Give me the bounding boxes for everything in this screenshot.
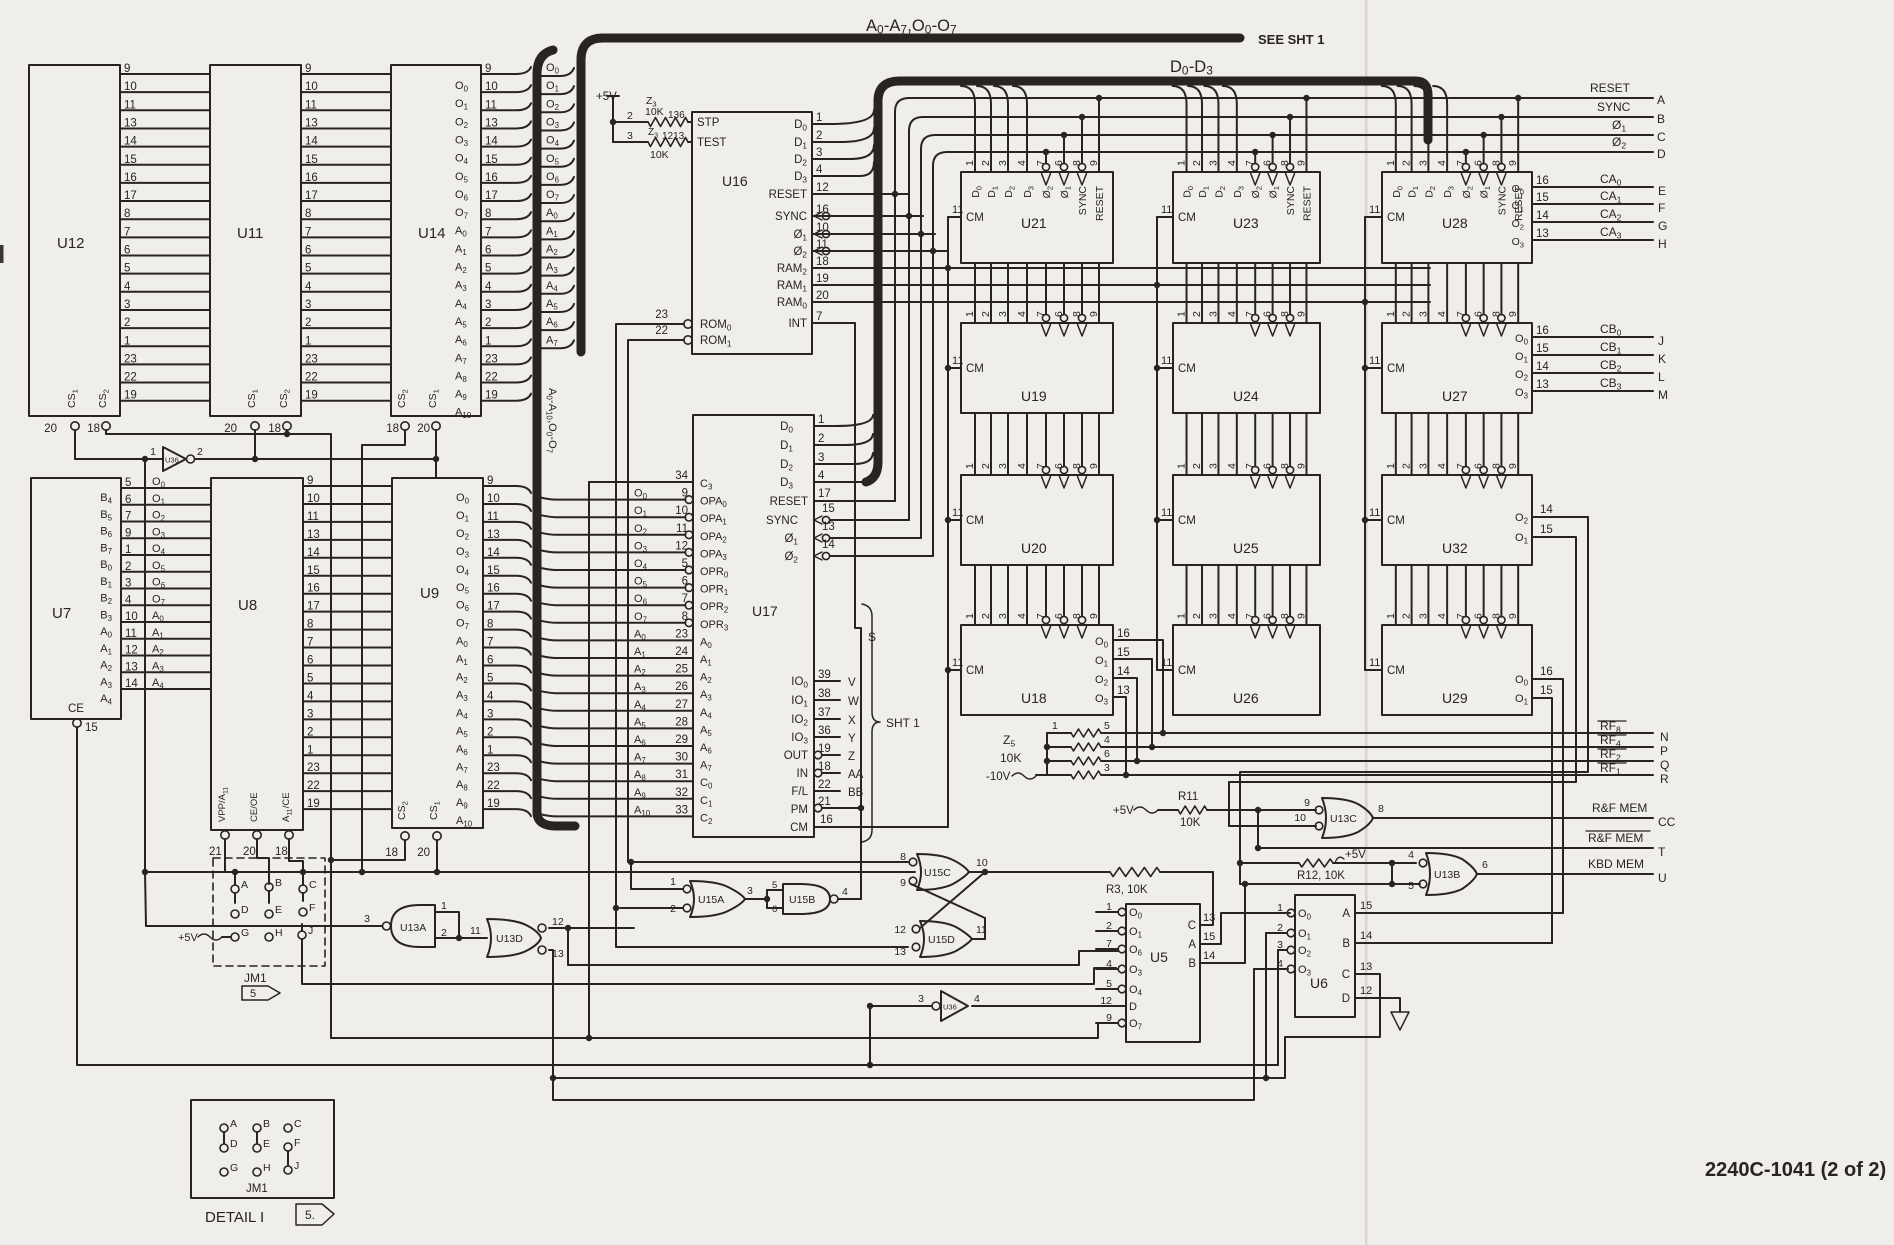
svg-text:T: T bbox=[1658, 845, 1666, 859]
svg-text:3: 3 bbox=[307, 708, 313, 720]
svg-text:5: 5 bbox=[307, 672, 313, 684]
svg-text:11: 11 bbox=[1161, 355, 1172, 367]
svg-text:2: 2 bbox=[818, 433, 824, 445]
svg-text:4: 4 bbox=[124, 281, 131, 293]
svg-text:C: C bbox=[1342, 969, 1350, 981]
svg-text:X: X bbox=[848, 715, 856, 727]
svg-text:33: 33 bbox=[675, 804, 688, 816]
svg-text:U13D: U13D bbox=[496, 933, 523, 945]
svg-text:B: B bbox=[1188, 958, 1196, 970]
svg-text:R&F MEM: R&F MEM bbox=[1588, 831, 1643, 845]
svg-text:U7: U7 bbox=[52, 605, 71, 622]
svg-text:1: 1 bbox=[818, 414, 824, 426]
svg-text:5: 5 bbox=[124, 263, 130, 275]
svg-text:15: 15 bbox=[822, 503, 835, 515]
svg-text:U12: U12 bbox=[57, 235, 85, 252]
svg-text:3: 3 bbox=[1104, 762, 1110, 774]
svg-text:U13B: U13B bbox=[1434, 869, 1460, 881]
svg-text:20: 20 bbox=[44, 423, 57, 435]
svg-text:20: 20 bbox=[243, 846, 256, 858]
svg-text:6: 6 bbox=[772, 904, 777, 915]
svg-text:OUT: OUT bbox=[784, 750, 808, 762]
svg-text:B: B bbox=[1657, 112, 1665, 126]
svg-text:5.: 5. bbox=[305, 1208, 315, 1222]
svg-text:RESET: RESET bbox=[769, 189, 807, 201]
svg-text:15: 15 bbox=[307, 565, 320, 577]
svg-text:4: 4 bbox=[842, 886, 848, 898]
svg-text:8: 8 bbox=[305, 208, 311, 220]
svg-text:U14: U14 bbox=[418, 225, 446, 242]
svg-text:CM: CM bbox=[966, 515, 984, 527]
svg-text:11: 11 bbox=[1369, 657, 1380, 669]
svg-text:15: 15 bbox=[1540, 685, 1553, 697]
svg-text:F: F bbox=[294, 1137, 300, 1149]
svg-text:11: 11 bbox=[952, 507, 963, 519]
svg-text:3: 3 bbox=[816, 147, 822, 159]
svg-text:E: E bbox=[263, 1138, 270, 1150]
svg-text:14: 14 bbox=[124, 136, 137, 148]
svg-text:B: B bbox=[275, 877, 282, 889]
svg-text:CM: CM bbox=[1178, 515, 1196, 527]
svg-text:15: 15 bbox=[305, 154, 318, 166]
svg-text:U27: U27 bbox=[1442, 388, 1468, 404]
svg-text:JM1: JM1 bbox=[246, 1183, 268, 1195]
svg-text:SYNC: SYNC bbox=[1285, 186, 1297, 216]
svg-text:K: K bbox=[1658, 352, 1666, 366]
svg-text:2: 2 bbox=[816, 130, 822, 142]
svg-text:PM: PM bbox=[791, 804, 808, 816]
svg-text:20: 20 bbox=[816, 290, 829, 302]
svg-text:29: 29 bbox=[675, 734, 688, 746]
svg-text:21: 21 bbox=[209, 846, 222, 858]
svg-text:U29: U29 bbox=[1442, 690, 1468, 706]
svg-text:1: 1 bbox=[1277, 902, 1283, 914]
svg-text:D: D bbox=[1129, 1001, 1137, 1013]
svg-text:23: 23 bbox=[655, 309, 668, 321]
svg-text:11: 11 bbox=[1161, 204, 1172, 216]
svg-text:7: 7 bbox=[816, 311, 822, 323]
svg-text:2: 2 bbox=[307, 726, 313, 738]
svg-text:CM: CM bbox=[1178, 665, 1196, 677]
svg-text:D: D bbox=[1342, 993, 1350, 1005]
svg-text:12: 12 bbox=[1360, 985, 1372, 997]
svg-text:19: 19 bbox=[818, 743, 831, 755]
svg-text:7: 7 bbox=[124, 226, 130, 238]
svg-text:3: 3 bbox=[747, 885, 753, 897]
svg-text:10K: 10K bbox=[1180, 817, 1201, 829]
svg-text:AA: AA bbox=[848, 769, 864, 781]
svg-text:-10V: -10V bbox=[986, 771, 1011, 783]
svg-text:11: 11 bbox=[952, 204, 963, 216]
svg-text:Z: Z bbox=[848, 751, 855, 763]
svg-text:1: 1 bbox=[1052, 720, 1058, 732]
svg-text:W: W bbox=[848, 696, 859, 708]
svg-text:RESET: RESET bbox=[1094, 185, 1106, 221]
svg-text:CM: CM bbox=[1387, 212, 1405, 224]
svg-text:15: 15 bbox=[85, 722, 98, 734]
svg-text:B: B bbox=[1342, 938, 1350, 950]
svg-text:5: 5 bbox=[1104, 720, 1110, 732]
svg-text:16: 16 bbox=[307, 583, 320, 595]
svg-text:DETAIL I: DETAIL I bbox=[205, 1209, 264, 1226]
svg-text:14: 14 bbox=[1360, 930, 1372, 942]
svg-text:L: L bbox=[1658, 370, 1665, 384]
svg-text:19: 19 bbox=[816, 273, 829, 285]
svg-text:3: 3 bbox=[918, 993, 924, 1005]
svg-text:3: 3 bbox=[364, 913, 370, 925]
svg-text:6: 6 bbox=[307, 655, 313, 667]
svg-text:RESET: RESET bbox=[770, 496, 808, 508]
svg-text:16: 16 bbox=[305, 172, 318, 184]
svg-text:37: 37 bbox=[818, 707, 831, 719]
svg-text:7: 7 bbox=[307, 637, 313, 649]
svg-text:6: 6 bbox=[1482, 859, 1488, 871]
svg-text:11: 11 bbox=[470, 925, 481, 937]
svg-text:R: R bbox=[1660, 772, 1669, 786]
svg-text:C: C bbox=[309, 879, 317, 891]
svg-text:13: 13 bbox=[307, 529, 320, 541]
svg-text:SYNC: SYNC bbox=[1597, 100, 1631, 114]
svg-text:10K: 10K bbox=[1000, 751, 1021, 765]
svg-text:4: 4 bbox=[1104, 734, 1110, 746]
svg-text:11: 11 bbox=[952, 355, 963, 367]
svg-text:13: 13 bbox=[894, 946, 906, 958]
svg-text:U13C: U13C bbox=[1330, 813, 1357, 825]
svg-text:U13A: U13A bbox=[400, 922, 426, 934]
svg-text:TEST: TEST bbox=[697, 137, 726, 149]
svg-text:5: 5 bbox=[305, 263, 311, 275]
svg-text:SYNC: SYNC bbox=[1077, 186, 1089, 216]
svg-text:Y: Y bbox=[848, 733, 856, 745]
svg-text:13: 13 bbox=[1117, 685, 1130, 697]
svg-text:11: 11 bbox=[124, 99, 136, 111]
svg-text:13: 13 bbox=[822, 521, 835, 533]
svg-text:11: 11 bbox=[1161, 507, 1172, 519]
svg-text:15: 15 bbox=[1360, 900, 1372, 912]
svg-text:6: 6 bbox=[305, 245, 311, 257]
svg-text:RESET: RESET bbox=[1590, 81, 1631, 95]
svg-text:RESET: RESET bbox=[1301, 185, 1313, 221]
svg-text:KBD MEM: KBD MEM bbox=[1588, 857, 1644, 871]
svg-text:U36: U36 bbox=[943, 1003, 957, 1012]
svg-text:23: 23 bbox=[305, 353, 318, 365]
svg-text:R3, 10K: R3, 10K bbox=[1106, 884, 1148, 896]
svg-text:B: B bbox=[263, 1118, 270, 1130]
svg-text:10: 10 bbox=[976, 857, 988, 869]
svg-text:14: 14 bbox=[822, 539, 835, 551]
svg-text:14: 14 bbox=[1117, 666, 1130, 678]
svg-text:3: 3 bbox=[818, 452, 824, 464]
svg-text:R&F MEM: R&F MEM bbox=[1592, 801, 1647, 815]
svg-text:CM: CM bbox=[1387, 515, 1405, 527]
svg-text:16: 16 bbox=[1536, 325, 1549, 337]
svg-text:4: 4 bbox=[1408, 849, 1414, 861]
svg-text:6: 6 bbox=[124, 245, 130, 257]
svg-text:22: 22 bbox=[307, 780, 320, 792]
svg-text:30: 30 bbox=[675, 752, 688, 764]
svg-text:16: 16 bbox=[820, 814, 833, 826]
svg-text:32: 32 bbox=[675, 787, 688, 799]
svg-text:13: 13 bbox=[1536, 379, 1549, 391]
svg-text:14: 14 bbox=[305, 136, 318, 148]
svg-text:A: A bbox=[230, 1118, 237, 1130]
svg-text:22: 22 bbox=[305, 372, 318, 384]
svg-text:G: G bbox=[1658, 219, 1667, 233]
svg-text:38: 38 bbox=[818, 688, 831, 700]
svg-text:CM: CM bbox=[1178, 212, 1196, 224]
svg-text:CE: CE bbox=[68, 703, 84, 715]
svg-text:U17: U17 bbox=[752, 603, 778, 619]
svg-text:1: 1 bbox=[150, 446, 156, 458]
svg-text:5: 5 bbox=[1408, 880, 1414, 892]
svg-text:10: 10 bbox=[305, 81, 318, 93]
svg-text:2: 2 bbox=[305, 317, 311, 329]
svg-text:1: 1 bbox=[670, 876, 676, 888]
svg-text:17: 17 bbox=[124, 190, 137, 202]
svg-text:9: 9 bbox=[307, 475, 313, 487]
svg-text:16: 16 bbox=[1117, 628, 1130, 640]
svg-text:11: 11 bbox=[305, 99, 317, 111]
svg-text:17: 17 bbox=[305, 190, 318, 202]
svg-text:A: A bbox=[1188, 939, 1196, 951]
svg-text:F: F bbox=[1658, 201, 1665, 215]
svg-text:14: 14 bbox=[307, 547, 320, 559]
svg-text:10: 10 bbox=[1294, 812, 1306, 824]
svg-text:19: 19 bbox=[307, 798, 320, 810]
svg-text:A: A bbox=[1342, 908, 1350, 920]
svg-text:U21: U21 bbox=[1021, 215, 1047, 231]
svg-text:11: 11 bbox=[1369, 355, 1380, 367]
svg-text:U: U bbox=[1658, 871, 1667, 885]
svg-text:15: 15 bbox=[1536, 192, 1549, 204]
svg-text:SYNC: SYNC bbox=[766, 515, 798, 527]
svg-text:D: D bbox=[230, 1138, 238, 1150]
svg-text:INT: INT bbox=[788, 318, 807, 330]
svg-text:23: 23 bbox=[307, 762, 320, 774]
svg-text:8: 8 bbox=[307, 619, 313, 631]
svg-text:U15A: U15A bbox=[698, 894, 724, 906]
svg-text:15: 15 bbox=[1540, 524, 1553, 536]
svg-text:SHT 1: SHT 1 bbox=[886, 716, 920, 730]
svg-text:26: 26 bbox=[675, 681, 688, 693]
svg-text:R12, 10K: R12, 10K bbox=[1297, 870, 1345, 882]
svg-text:U15B: U15B bbox=[789, 894, 815, 906]
svg-text:CC: CC bbox=[1658, 815, 1676, 829]
svg-text:CM: CM bbox=[1387, 363, 1405, 375]
svg-text:M: M bbox=[1658, 388, 1668, 402]
svg-text:27: 27 bbox=[675, 699, 688, 711]
svg-text:13: 13 bbox=[305, 117, 318, 129]
svg-text:8: 8 bbox=[1378, 803, 1384, 815]
svg-text:17: 17 bbox=[818, 488, 831, 500]
svg-text:1: 1 bbox=[124, 335, 130, 347]
svg-text:Q: Q bbox=[1660, 758, 1669, 772]
svg-text:U24: U24 bbox=[1233, 388, 1259, 404]
svg-text:10: 10 bbox=[307, 493, 320, 505]
svg-text:11: 11 bbox=[307, 511, 319, 523]
svg-text:H: H bbox=[275, 927, 283, 939]
svg-text:CM: CM bbox=[1178, 363, 1196, 375]
svg-text:+5V: +5V bbox=[1345, 849, 1366, 861]
svg-text:1: 1 bbox=[305, 335, 311, 347]
svg-text:22: 22 bbox=[124, 372, 137, 384]
svg-text:136: 136 bbox=[668, 110, 685, 121]
svg-text:CM: CM bbox=[966, 212, 984, 224]
svg-text:2: 2 bbox=[197, 446, 203, 458]
svg-text:8: 8 bbox=[124, 208, 130, 220]
svg-text:18: 18 bbox=[386, 423, 399, 435]
svg-text:U8: U8 bbox=[238, 597, 257, 614]
svg-text:U18: U18 bbox=[1021, 690, 1047, 706]
svg-text:R11: R11 bbox=[1178, 791, 1198, 803]
svg-text:23: 23 bbox=[124, 353, 137, 365]
svg-text:8: 8 bbox=[900, 851, 906, 863]
svg-text:15: 15 bbox=[1203, 931, 1215, 943]
svg-text:2: 2 bbox=[627, 110, 633, 122]
svg-text:U28: U28 bbox=[1442, 215, 1468, 231]
svg-text:F/L: F/L bbox=[791, 786, 808, 798]
svg-text:U26: U26 bbox=[1233, 690, 1259, 706]
svg-text:U11: U11 bbox=[237, 225, 263, 242]
svg-text:G: G bbox=[241, 927, 249, 939]
svg-text:23: 23 bbox=[675, 628, 688, 640]
svg-text:3: 3 bbox=[627, 130, 633, 142]
svg-text:1: 1 bbox=[816, 112, 822, 124]
svg-text:14: 14 bbox=[1203, 950, 1215, 962]
svg-text:16: 16 bbox=[124, 172, 137, 184]
svg-text:J: J bbox=[1658, 334, 1664, 348]
svg-text:U23: U23 bbox=[1233, 215, 1259, 231]
svg-text:28: 28 bbox=[675, 716, 688, 728]
svg-text:E: E bbox=[1658, 184, 1666, 198]
svg-text:U19: U19 bbox=[1021, 388, 1047, 404]
svg-text:SYNC: SYNC bbox=[775, 211, 807, 223]
svg-text:2240C-1041 (2 of 2): 2240C-1041 (2 of 2) bbox=[1705, 1159, 1886, 1181]
svg-text:C: C bbox=[1657, 130, 1666, 144]
svg-text:11: 11 bbox=[1369, 507, 1380, 519]
svg-text:24: 24 bbox=[675, 646, 688, 658]
svg-text:D: D bbox=[1657, 147, 1666, 161]
svg-text:U25: U25 bbox=[1233, 540, 1259, 556]
svg-text:CE/OE: CE/OE bbox=[249, 792, 260, 822]
svg-text:31: 31 bbox=[675, 769, 688, 781]
svg-text:14: 14 bbox=[1540, 504, 1553, 516]
svg-text:12: 12 bbox=[552, 916, 564, 928]
svg-text:20: 20 bbox=[417, 423, 430, 435]
svg-text:5: 5 bbox=[250, 988, 256, 1000]
svg-text:13: 13 bbox=[124, 117, 137, 129]
svg-text:3: 3 bbox=[124, 299, 130, 311]
svg-text:J: J bbox=[308, 925, 313, 937]
svg-text:19: 19 bbox=[305, 390, 318, 402]
svg-text:4: 4 bbox=[974, 993, 980, 1005]
svg-text:18: 18 bbox=[87, 423, 100, 435]
svg-text:12: 12 bbox=[816, 182, 829, 194]
svg-text:16: 16 bbox=[1540, 666, 1553, 678]
svg-text:13: 13 bbox=[1536, 228, 1549, 240]
svg-text:U15D: U15D bbox=[928, 934, 955, 946]
svg-text:G: G bbox=[230, 1162, 238, 1174]
svg-text:20: 20 bbox=[417, 847, 430, 859]
svg-text:7: 7 bbox=[305, 226, 311, 238]
svg-text:U5: U5 bbox=[1150, 949, 1168, 965]
svg-text:A: A bbox=[241, 879, 248, 891]
svg-text:+5V: +5V bbox=[178, 932, 199, 944]
svg-text:4: 4 bbox=[816, 164, 823, 176]
svg-text:3: 3 bbox=[305, 299, 311, 311]
svg-text:A: A bbox=[1657, 93, 1665, 107]
svg-text:14: 14 bbox=[1536, 210, 1549, 222]
svg-text:9: 9 bbox=[124, 63, 130, 75]
svg-text:18: 18 bbox=[816, 256, 829, 268]
svg-text:J: J bbox=[294, 1160, 299, 1172]
svg-text:U6: U6 bbox=[1310, 975, 1328, 991]
svg-text:4: 4 bbox=[818, 470, 825, 482]
svg-text:SYNC: SYNC bbox=[1496, 186, 1508, 216]
svg-text:15: 15 bbox=[124, 154, 137, 166]
svg-text:F: F bbox=[309, 902, 315, 914]
svg-text:16: 16 bbox=[1536, 175, 1549, 187]
svg-text:N: N bbox=[1660, 730, 1669, 744]
svg-text:A11 /CE: A11 /CE bbox=[281, 792, 294, 822]
svg-text:CM: CM bbox=[1387, 665, 1405, 677]
svg-text:22: 22 bbox=[655, 325, 668, 337]
svg-text:11: 11 bbox=[952, 657, 963, 669]
svg-text:13: 13 bbox=[1360, 961, 1372, 973]
svg-text:21: 21 bbox=[818, 796, 831, 808]
svg-text:10K: 10K bbox=[650, 149, 669, 161]
svg-text:U36: U36 bbox=[165, 456, 179, 465]
svg-text:14: 14 bbox=[1536, 361, 1549, 373]
svg-text:CM: CM bbox=[966, 665, 984, 677]
svg-text:11: 11 bbox=[1369, 204, 1380, 216]
svg-text:SEE SHT 1: SEE SHT 1 bbox=[1258, 32, 1324, 47]
svg-text:4: 4 bbox=[307, 690, 314, 702]
svg-text:CM: CM bbox=[790, 822, 808, 834]
svg-text:CM: CM bbox=[966, 363, 984, 375]
svg-text:2: 2 bbox=[124, 317, 130, 329]
svg-text:6: 6 bbox=[1104, 748, 1110, 760]
svg-text:17: 17 bbox=[307, 601, 320, 613]
svg-text:12: 12 bbox=[894, 924, 906, 936]
svg-text:34: 34 bbox=[675, 470, 688, 482]
svg-text:15: 15 bbox=[1536, 343, 1549, 355]
svg-text:JM1: JM1 bbox=[244, 971, 267, 985]
svg-text:25: 25 bbox=[675, 664, 688, 676]
svg-text:9: 9 bbox=[1304, 797, 1310, 809]
svg-text:18: 18 bbox=[818, 761, 831, 773]
svg-text:U9: U9 bbox=[420, 585, 439, 602]
svg-text:STP: STP bbox=[697, 117, 720, 129]
svg-text:H: H bbox=[263, 1162, 271, 1174]
svg-text:IN: IN bbox=[797, 768, 809, 780]
svg-text:19: 19 bbox=[124, 390, 137, 402]
svg-text:4: 4 bbox=[305, 281, 312, 293]
svg-text:U15C: U15C bbox=[924, 867, 951, 879]
svg-text:18: 18 bbox=[385, 847, 398, 859]
svg-text:BB: BB bbox=[848, 787, 864, 799]
svg-text:10: 10 bbox=[124, 81, 137, 93]
svg-text:U16: U16 bbox=[722, 173, 748, 189]
svg-text:U32: U32 bbox=[1442, 540, 1468, 556]
svg-text:U20: U20 bbox=[1021, 540, 1047, 556]
svg-text:E: E bbox=[275, 904, 282, 916]
svg-text:22: 22 bbox=[818, 779, 831, 791]
svg-text:39: 39 bbox=[818, 669, 831, 681]
svg-text:36: 36 bbox=[818, 725, 831, 737]
svg-text:C: C bbox=[294, 1118, 302, 1130]
svg-text:+5V: +5V bbox=[1113, 805, 1134, 817]
